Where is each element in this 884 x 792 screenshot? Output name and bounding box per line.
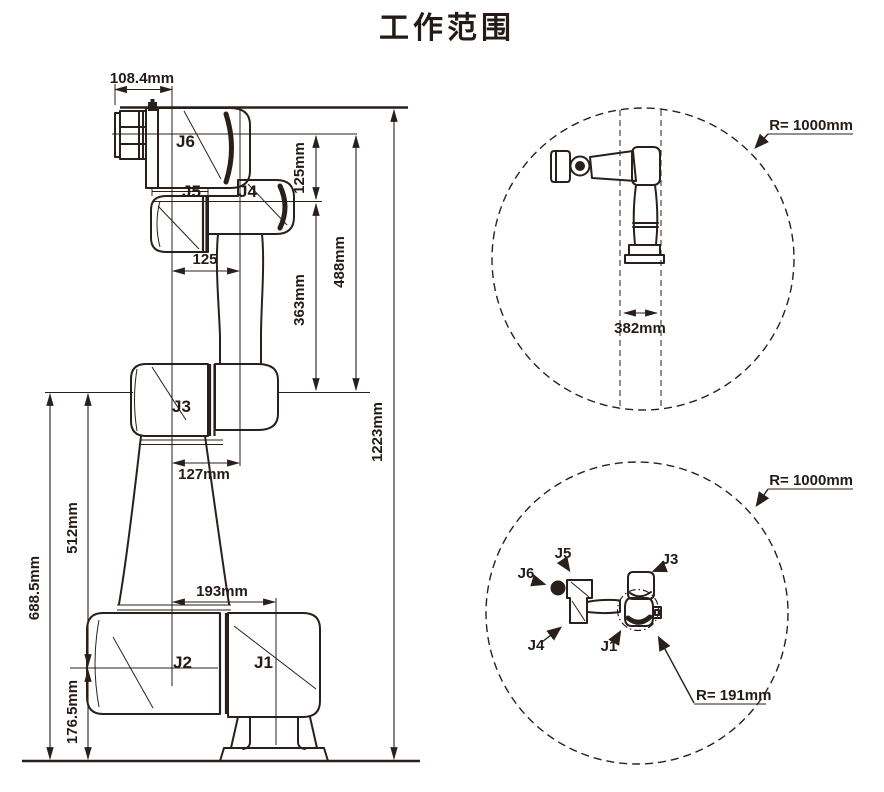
j2-j1-band <box>220 613 226 714</box>
dim-label-column-width: 382mm <box>614 320 666 337</box>
reach-envelope-circle-top <box>486 462 788 764</box>
top-joint-label-j6: J6 <box>518 565 535 582</box>
top-joint-leader-j5 <box>563 561 569 570</box>
flange-knob <box>148 99 157 111</box>
dim-label-j3-height: 688.5mm <box>26 556 43 620</box>
tool-flange-stack <box>115 111 146 159</box>
dim-top-width: 108.4mm <box>110 70 174 90</box>
top-hub-shade <box>628 617 650 622</box>
front-robot-outline <box>87 99 328 761</box>
side-reach-callout: R= 1000mm <box>756 117 853 147</box>
dim-wrist-offset: 125 <box>173 251 239 271</box>
j5-highlight-line <box>158 206 199 249</box>
wrist-radius-label: R= 191mm <box>696 687 771 704</box>
dim-label-j2-height: 176.5mm <box>64 680 81 744</box>
top-joint-leader-j6 <box>534 581 544 584</box>
j2-housing <box>87 613 220 714</box>
top-reach-leader <box>757 489 768 505</box>
joint-label-j5: J5 <box>182 182 201 201</box>
joint-label-j4: J4 <box>238 182 257 201</box>
joint-label-j1: J1 <box>254 653 273 672</box>
workspace-diagram: 工作范围 <box>0 0 884 792</box>
joint-label-j6: J6 <box>176 132 195 151</box>
dim-flange-to-j4: 125mm <box>291 136 316 199</box>
side-reach-label: R= 1000mm <box>769 117 853 134</box>
top-reach-label: R= 1000mm <box>769 472 853 489</box>
dim-label-shoulder-offset: 193mm <box>196 583 248 600</box>
dim-label-j3-to-j2: 512mm <box>64 502 81 554</box>
side-column <box>633 185 658 245</box>
top-joint-leader-j3 <box>654 567 664 571</box>
top-j3-cylinder <box>628 572 654 599</box>
dim-shoulder-offset: 193mm <box>173 583 275 602</box>
side-wrist-joint-core <box>575 161 585 171</box>
top-envelope-view: J5 J6 J3 J4 J1 R= 1000mm R= 191mm <box>486 462 853 764</box>
side-reach-leader <box>756 134 768 147</box>
side-robot-silhouette <box>551 147 664 263</box>
dim-label-wrist-offset: 125 <box>192 251 217 268</box>
side-envelope-view: 382mm R= 1000mm <box>492 108 853 410</box>
dim-label-flange-to-j4: 125mm <box>291 142 308 194</box>
page-title: 工作范围 <box>379 12 515 45</box>
joint-label-j3: J3 <box>172 397 191 416</box>
side-base <box>625 245 664 263</box>
diagram-page: 工作范围 <box>0 0 884 792</box>
j5-j4-band <box>203 196 207 252</box>
top-reach-callout: R= 1000mm <box>757 472 853 505</box>
base-foot <box>220 748 328 761</box>
dim-label-elbow-offset: 127mm <box>178 466 230 483</box>
j3-band <box>210 364 215 436</box>
dim-j2-height: 176.5mm <box>64 670 88 759</box>
dim-j3-to-j2: 512mm <box>64 394 88 666</box>
j2-cap-line <box>95 620 99 707</box>
j3-housing <box>131 364 278 436</box>
base-pedestal <box>231 717 317 749</box>
j2-highlight-line <box>113 637 153 708</box>
top-joint-label-j5: J5 <box>555 545 572 562</box>
j1-highlight-line <box>234 626 316 689</box>
side-width-dimension: 382mm <box>614 313 666 337</box>
j3-interface-lines <box>141 440 223 445</box>
dim-elbow-offset: 127mm <box>173 463 239 483</box>
top-robot-silhouette <box>551 572 662 626</box>
dim-label-j4-to-j3: 363mm <box>291 274 308 326</box>
lower-arm-interface-lines <box>117 605 231 610</box>
top-arm-link <box>587 600 620 613</box>
wrist-radius-callout: R= 191mm <box>659 638 771 704</box>
dim-j3-height: 688.5mm <box>26 394 50 759</box>
dim-label-total-height: 1223mm <box>369 402 386 462</box>
dim-j4-to-j3: 363mm <box>291 204 316 390</box>
dim-label-top-width: 108.4mm <box>110 70 174 87</box>
j6-cap-shade <box>226 114 232 182</box>
j6-housing <box>146 108 250 188</box>
joint-label-j2: J2 <box>173 653 192 672</box>
lower-arm-link <box>119 436 229 604</box>
reach-envelope-circle <box>492 108 794 410</box>
dim-total-height: 1223mm <box>369 110 394 759</box>
side-tool-flange <box>551 151 570 182</box>
top-joint-label-j3: J3 <box>662 551 679 568</box>
wrist-radius-leader <box>659 638 694 703</box>
j3-cap-line <box>135 369 138 431</box>
top-joint-label-j4: J4 <box>528 637 545 654</box>
front-view: J6 J5 J4 J3 J2 J1 108.4mm 125mm 363mm 48… <box>22 70 420 761</box>
top-joint-leader-j4 <box>542 628 560 642</box>
j1-housing <box>228 613 320 717</box>
side-arm-link <box>590 151 636 181</box>
top-j6-dot <box>551 581 566 596</box>
dim-flange-to-j3: 488mm <box>331 136 356 390</box>
dim-label-flange-to-j3: 488mm <box>331 236 348 288</box>
